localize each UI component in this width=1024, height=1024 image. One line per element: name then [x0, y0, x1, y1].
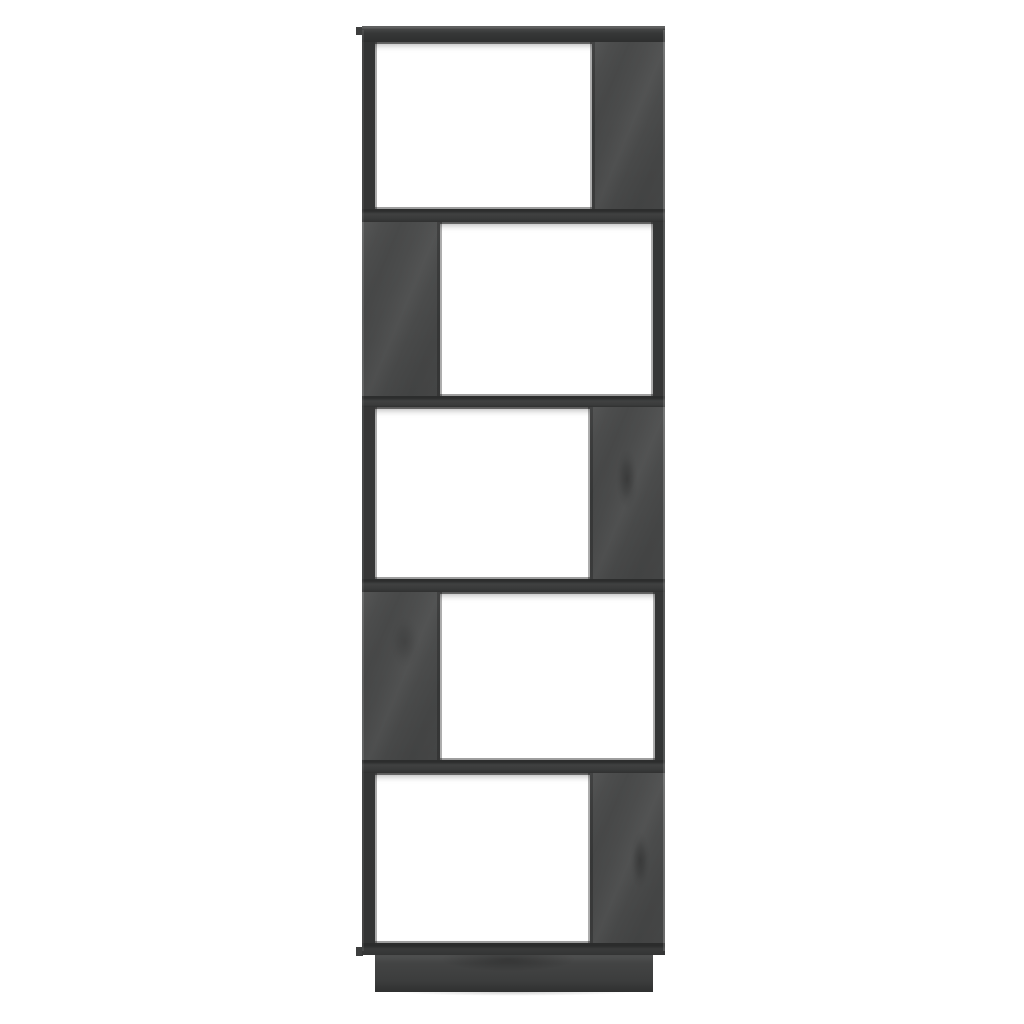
wood-panel-tier-4 — [362, 592, 440, 760]
wood-panel-tier-1 — [592, 42, 665, 209]
shelf-opening-tier-2 — [440, 222, 653, 396]
shelf-divider-2 — [362, 396, 665, 407]
right-edge-highlight — [663, 30, 665, 951]
wood-panel-tier-2 — [362, 222, 440, 396]
shelf-opening-tier-4 — [440, 592, 655, 760]
bookshelf-base — [375, 955, 653, 992]
top-board — [362, 26, 665, 42]
shelf-divider-4 — [362, 760, 665, 773]
shelf-opening-tier-5 — [375, 773, 590, 943]
wood-knot — [630, 831, 650, 889]
product-photo-canvas — [0, 0, 1024, 1024]
shelf-divider-1 — [362, 209, 665, 222]
floor-shadow — [367, 992, 661, 1000]
left-edge-highlight — [362, 30, 364, 951]
wood-panel-tier-3 — [590, 407, 665, 579]
wood-knot — [390, 616, 420, 668]
shelf-opening-tier-3 — [375, 407, 590, 579]
shelf-opening-tier-1 — [375, 42, 592, 209]
wood-knot — [616, 449, 638, 509]
bookshelf — [0, 0, 1024, 1024]
bottom-board — [362, 943, 665, 955]
shelf-divider-3 — [362, 579, 665, 592]
wood-panel-tier-5 — [590, 773, 665, 943]
